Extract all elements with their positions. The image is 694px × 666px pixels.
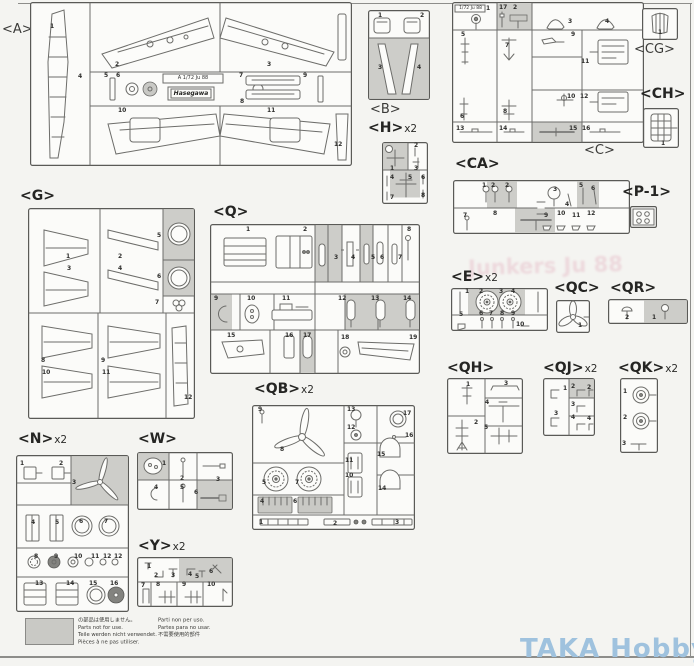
part-number: 2 — [333, 521, 337, 527]
part-number: 1 — [50, 24, 54, 30]
sprue-E-label: <E>x2 — [451, 269, 498, 285]
part-number: 6 — [79, 519, 83, 525]
part-number: 4 — [605, 19, 609, 25]
part-number: 2 — [623, 415, 627, 421]
note-line: Parti non per uso. — [158, 617, 210, 624]
part-number: 7 — [463, 213, 467, 219]
part-number: 3 — [553, 187, 557, 193]
part-number: 2 — [118, 254, 122, 260]
sprue-QR: <QR> 21 — [606, 280, 692, 328]
part-number: 13 — [371, 296, 379, 302]
sprue-QC: <QC> 1 — [552, 280, 594, 336]
sprue-N: <N>x2 — [16, 431, 134, 615]
part-number: 1 — [66, 254, 70, 260]
part-number: 2 — [625, 315, 629, 321]
part-number: 7 — [141, 583, 145, 589]
part-number: 4 — [188, 572, 192, 578]
part-number: 1 — [578, 323, 582, 329]
part-number: 5 — [579, 183, 583, 189]
part-number: 2 — [474, 420, 478, 426]
part-number: 16 — [285, 333, 293, 339]
part-number: 3 — [72, 480, 76, 486]
note-line: の部品は使用しません。 — [78, 617, 157, 624]
note-column-2: Parti non per uso.Partes para no usar.不需… — [158, 617, 210, 638]
part-number: 1 — [147, 564, 151, 570]
part-number: 8 — [156, 582, 160, 588]
part-number: 16 — [405, 433, 413, 439]
part-number: 4 — [565, 202, 569, 208]
part-number: 1 — [246, 227, 250, 233]
taka-hobby-watermark: TAKA Hobby — [520, 634, 694, 664]
sprue-QK-label: <QK>x2 — [618, 360, 678, 376]
part-number: 7 — [390, 195, 394, 201]
part-number: 10 — [74, 554, 82, 560]
part-number: 1 — [482, 183, 486, 189]
part-number: 8 — [503, 109, 507, 115]
sprue-A-label: <A> — [2, 22, 34, 37]
sprue-A: <A> — [0, 2, 354, 170]
part-number: 6 — [209, 569, 213, 575]
sprue-QC-label: <QC> — [554, 280, 601, 296]
sheet-border-right — [690, 3, 691, 656]
sprue-B-label: <B> — [370, 102, 402, 117]
part-number: 17 — [403, 411, 411, 417]
part-number: 11 — [282, 296, 290, 302]
part-number: 18 — [341, 335, 349, 341]
part-number: 3 — [568, 19, 572, 25]
part-number: 4 — [511, 289, 515, 295]
part-number: 12 — [338, 296, 346, 302]
part-number: 2 — [59, 461, 63, 467]
instruction-sheet: Junkers Ju 88 <A> — [0, 0, 694, 666]
sprue-CH: <CH> 1 — [638, 86, 688, 150]
note-line: Pièces à ne pas utiliser. — [78, 638, 157, 645]
sprue-Y-label: <Y>x2 — [138, 538, 186, 554]
part-number: 5 — [461, 32, 465, 38]
part-number: 1 — [658, 30, 662, 36]
part-number: 10 — [247, 296, 255, 302]
part-number: 10 — [118, 108, 126, 114]
not-for-use-swatch — [25, 618, 74, 645]
sprue-Q-label: <Q> — [213, 204, 249, 220]
sprue-E: <E>x2 12345678910 — [449, 269, 551, 333]
note-column-1: の部品は使用しません。Parts not for use.Teile werde… — [78, 617, 157, 646]
part-number: 2 — [420, 13, 424, 19]
part-number: 1 — [259, 520, 263, 526]
part-number: 7 — [239, 73, 243, 79]
part-number: 8 — [240, 99, 244, 105]
part-number: 5 — [262, 480, 266, 486]
note-line: 不需要使用的部件 — [158, 631, 210, 638]
part-number: 9 — [544, 213, 548, 219]
sprue-QB: <QB>x2 — [250, 381, 420, 533]
part-number: 2 — [154, 573, 158, 579]
part-number: 10 — [42, 370, 50, 376]
part-number: 3 — [334, 255, 338, 261]
part-number: 11 — [581, 59, 589, 65]
sprue-Q: <Q> — [208, 202, 422, 376]
sprue-QJ: <QJ>x2 1223344 — [541, 360, 601, 440]
part-number: 14 — [499, 126, 507, 132]
part-number: 8 — [500, 311, 504, 317]
sprue-QR-label: <QR> — [610, 280, 657, 296]
part-number: 2 — [479, 289, 483, 295]
part-number: 6 — [157, 274, 161, 280]
part-number: 4 — [118, 266, 122, 272]
part-number: 4 — [485, 400, 489, 406]
part-number: 8 — [34, 554, 38, 560]
part-number: 15 — [569, 126, 577, 132]
part-number: 12 — [580, 94, 588, 100]
part-number: 19 — [409, 335, 417, 341]
part-number: 16 — [582, 126, 590, 132]
part-number: 1 — [623, 389, 627, 395]
part-number: 9 — [182, 582, 186, 588]
part-number: 9 — [571, 32, 575, 38]
part-number: 15 — [89, 581, 97, 587]
part-number: 5 — [55, 520, 59, 526]
part-number: 7 — [295, 480, 299, 486]
part-number: 2 — [491, 183, 495, 189]
part-number: 3 — [395, 520, 399, 526]
part-number: 3 — [67, 266, 71, 272]
part-number: 5 — [371, 255, 375, 261]
part-number: 9 — [214, 296, 218, 302]
part-number: 4 — [260, 499, 264, 505]
part-number: 2 — [180, 476, 184, 482]
part-number: 1 — [563, 386, 567, 392]
part-number: 6 — [460, 114, 464, 120]
sprue-B: 1234 <B> — [366, 8, 434, 120]
part-number: 3 — [267, 62, 271, 68]
part-number: 13 — [456, 126, 464, 132]
part-number: 3 — [504, 381, 508, 387]
part-number: 7 — [104, 519, 108, 525]
part-number: 9 — [258, 407, 262, 413]
part-number: 14 — [403, 296, 411, 302]
part-number: 3 — [499, 289, 503, 295]
part-number: 10 — [207, 582, 215, 588]
part-number: 11 — [91, 554, 99, 560]
part-number: 10 — [516, 322, 524, 328]
part-number: 3 — [414, 166, 418, 172]
sprue-QK: <QK>x2 123 — [616, 360, 678, 456]
sprue-H-label: <H>x2 — [368, 120, 417, 136]
part-number: 12 — [334, 142, 342, 148]
part-number: 3 — [171, 573, 175, 579]
part-number: 9 — [511, 311, 515, 317]
part-number: 1 — [465, 289, 469, 295]
part-number: 5 — [157, 233, 161, 239]
sprue-QJ-label: <QJ>x2 — [543, 360, 597, 376]
part-number: 2 — [115, 62, 119, 68]
part-number: 2 — [505, 183, 509, 189]
part-number: 10 — [345, 473, 353, 479]
part-number: 9 — [54, 554, 58, 560]
part-number: 6 — [194, 490, 198, 496]
note-line: Teile werden nicht verwendet. — [78, 631, 157, 638]
sprue-H: <H>x2 12345678 — [368, 120, 432, 206]
part-number: 8 — [493, 211, 497, 217]
part-number: 17 — [499, 5, 507, 11]
note-line: Partes para no usar. — [158, 624, 210, 631]
sprue-C: 1/72 Ju 88 1172345971110126813141516 <C> — [452, 2, 644, 160]
part-number: 1 — [378, 13, 382, 19]
part-number: 4 — [351, 255, 355, 261]
part-number: 8 — [280, 447, 284, 453]
part-number: 5 — [104, 73, 108, 79]
part-number: 14 — [378, 486, 386, 492]
part-number: 7 — [398, 255, 402, 261]
part-number: 2 — [303, 227, 307, 233]
part-number: 3 — [216, 477, 220, 483]
part-number: 12 — [103, 554, 111, 560]
part-number: 5 — [484, 425, 488, 431]
sprue-P1: <P-1> — [622, 184, 682, 232]
sprue-CA: <CA> 12234567 — [453, 156, 633, 236]
part-number: 7 — [155, 300, 159, 306]
part-number: 6 — [116, 73, 120, 79]
part-number: 1 — [652, 315, 656, 321]
part-number: 2 — [513, 5, 517, 11]
sprue-N-label: <N>x2 — [18, 431, 67, 447]
part-number: 12 — [184, 395, 192, 401]
part-number: 1 — [661, 141, 665, 147]
sprue-CA-label: <CA> — [455, 156, 501, 172]
part-number: 15 — [377, 452, 385, 458]
sprue-QH: <QH> 13425 — [445, 360, 527, 456]
part-number: 1 — [486, 6, 490, 12]
part-number: 6 — [591, 186, 595, 192]
part-number: 3 — [571, 402, 575, 408]
sprue-Y: <Y>x2 12345678910 — [135, 538, 237, 610]
part-number: 4 — [390, 175, 394, 181]
part-number: 3 — [622, 441, 626, 447]
part-number: 3 — [378, 65, 382, 71]
part-number: 3 — [554, 411, 558, 417]
hasegawa-logo: Hasegawa — [168, 87, 214, 100]
part-number: 9 — [303, 73, 307, 79]
part-number: 6 — [421, 175, 425, 181]
part-number: 7 — [505, 43, 509, 49]
sprue-QB-label: <QB>x2 — [254, 381, 314, 397]
part-number: 4 — [78, 74, 82, 80]
part-number: 5 — [195, 574, 199, 580]
part-number: 11 — [345, 458, 353, 464]
part-number: 1 — [20, 461, 24, 467]
part-number: 6 — [479, 311, 483, 317]
part-number: 5 — [408, 175, 412, 181]
sprue-G: <G> — [16, 186, 198, 422]
part-number: 4 — [587, 416, 591, 422]
part-number: 8 — [41, 358, 45, 364]
part-number: 13 — [347, 407, 355, 413]
part-number: 6 — [380, 255, 384, 261]
part-number: 1 — [162, 461, 166, 467]
part-number: 5 — [459, 312, 463, 318]
part-number: 2 — [587, 385, 591, 391]
part-number: 8 — [407, 227, 411, 233]
part-number: 4 — [571, 415, 575, 421]
sprue-G-label: <G> — [20, 188, 56, 204]
part-number: 13 — [35, 581, 43, 587]
part-number: 11 — [572, 213, 580, 219]
part-number: 4 — [154, 485, 158, 491]
sprue-QH-label: <QH> — [447, 360, 495, 376]
sprue-c-plaque: 1/72 Ju 88 — [456, 5, 485, 12]
part-number: 12 — [347, 425, 355, 431]
part-number: 12 — [114, 554, 122, 560]
part-number: 1 — [390, 166, 394, 172]
sprue-W-label: <W> — [138, 431, 178, 447]
part-number: 11 — [102, 370, 110, 376]
sprue-CH-label: <CH> — [640, 86, 686, 102]
part-number: 11 — [267, 108, 275, 114]
note-line: Parts not for use. — [78, 624, 157, 631]
part-number: 4 — [417, 65, 421, 71]
part-number: 9 — [101, 358, 105, 364]
part-number: 8 — [421, 193, 425, 199]
part-number: 14 — [66, 581, 74, 587]
part-number: 10 — [557, 211, 565, 217]
part-number: 16 — [110, 581, 118, 587]
part-number: 5 — [180, 485, 184, 491]
sprue-W: <W> 123456 — [135, 431, 237, 513]
part-number: 2 — [414, 143, 418, 149]
part-number: 4 — [31, 520, 35, 526]
part-number: 15 — [227, 333, 235, 339]
sprue-a-plaque: A 1/72 Ju 88 — [163, 74, 223, 83]
part-number: 17 — [303, 333, 311, 339]
part-number: 6 — [293, 499, 297, 505]
part-number: 7 — [489, 311, 493, 317]
part-number: 1 — [466, 382, 470, 388]
part-number: 10 — [567, 94, 575, 100]
part-number: 12 — [587, 211, 595, 217]
part-number: 2 — [571, 384, 575, 390]
